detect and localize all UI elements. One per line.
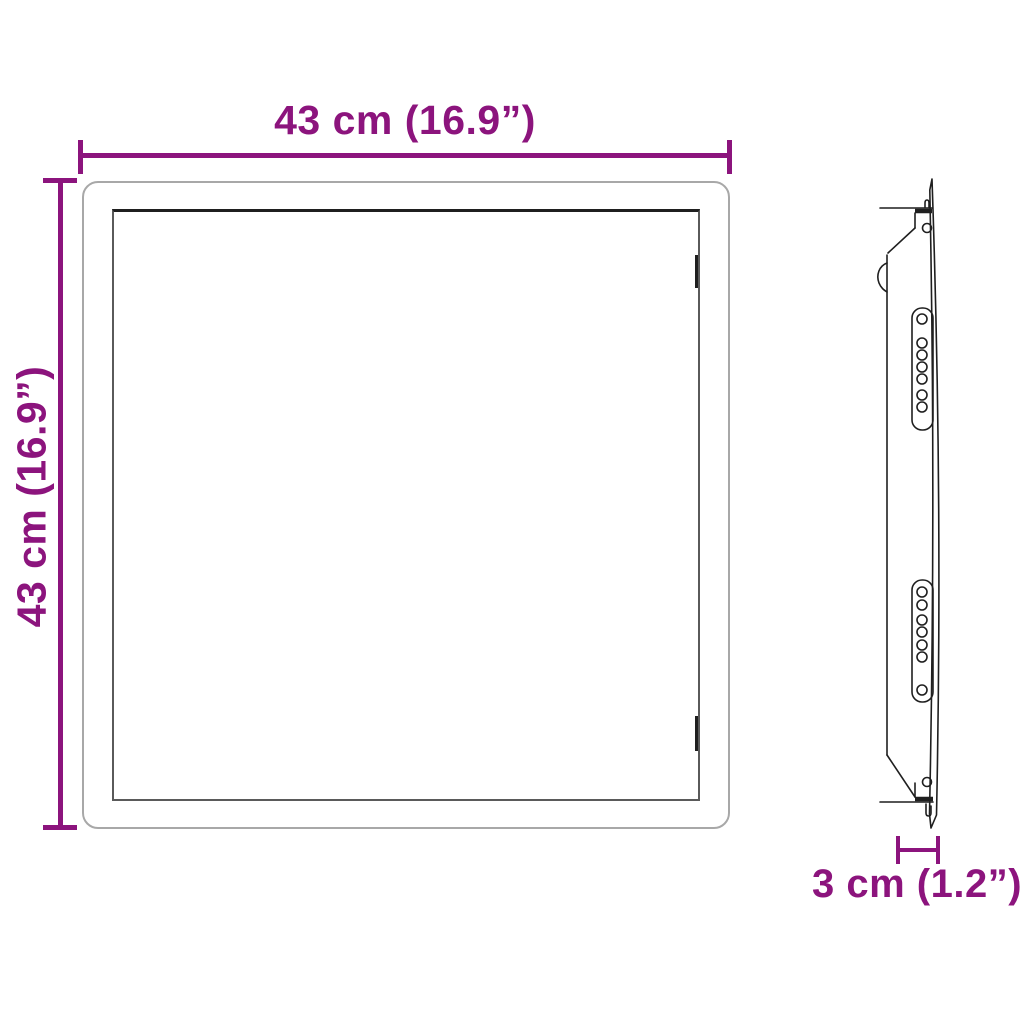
product-dimension-diagram: 43 cm (16.9”) 43 cm (16.9”) — [0, 0, 1024, 1024]
mounting-hole — [917, 652, 927, 662]
housing-bottom-slant — [887, 755, 915, 797]
side-view-mounting-plate-top — [912, 308, 933, 430]
mounting-hole — [917, 600, 927, 610]
width-dimension-tick-right — [727, 140, 732, 174]
top-bracket-hook — [925, 200, 929, 207]
side-view-front-panel — [930, 179, 939, 828]
front-panel-profile — [930, 179, 939, 828]
depth-dimension-label: 3 cm (1.2”) — [787, 862, 1024, 906]
housing-top-slant — [888, 228, 915, 253]
side-view-top-bracket — [880, 200, 932, 233]
height-dimension-line — [58, 180, 63, 828]
inner-face-edge-mark-bottom — [695, 716, 698, 751]
mounting-hole — [917, 314, 927, 324]
mounting-hole — [917, 615, 927, 625]
inner-face-edge-mark-top — [695, 255, 698, 288]
depth-dimension-line — [898, 848, 938, 852]
width-dimension-tick-left — [78, 140, 83, 174]
mounting-plate-bottom-outline — [912, 580, 933, 702]
mounting-hole — [917, 374, 927, 384]
mounting-hole — [917, 640, 927, 650]
depth-dimension-tick-left — [896, 836, 900, 864]
mounting-hole — [917, 362, 927, 372]
mounting-hole — [917, 338, 927, 348]
side-view-drawing — [860, 165, 960, 835]
mounting-hole — [917, 587, 927, 597]
mounting-hole — [917, 627, 927, 637]
mounting-hole — [917, 390, 927, 400]
width-dimension-label: 43 cm (16.9”) — [80, 98, 730, 143]
housing-side-bump — [878, 263, 887, 292]
height-dimension-label: 43 cm (16.9”) — [9, 322, 54, 672]
mounting-hole — [917, 350, 927, 360]
mounting-hole — [917, 685, 927, 695]
side-view-mounting-plate-bottom — [912, 580, 933, 702]
mounting-hole — [917, 402, 927, 412]
height-dimension-tick-top — [43, 178, 77, 183]
depth-dimension-tick-right — [936, 836, 940, 864]
side-view-back-housing — [878, 228, 915, 797]
height-dimension-tick-bottom — [43, 825, 77, 830]
width-dimension-line — [80, 153, 730, 158]
panel-inner-face — [112, 209, 700, 801]
